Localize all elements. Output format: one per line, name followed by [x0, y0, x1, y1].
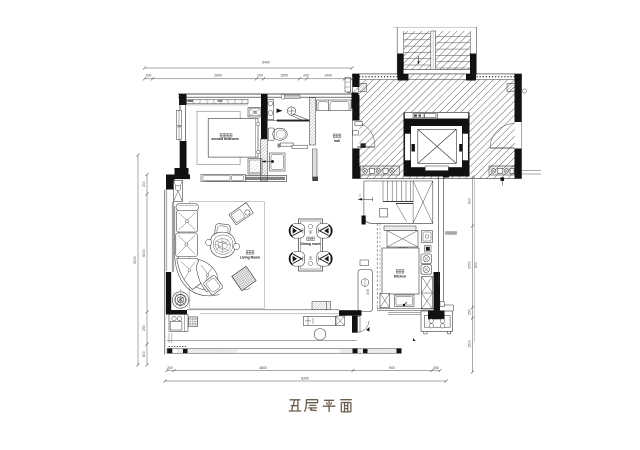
svg-text:1: 1 — [359, 194, 361, 198]
svg-text:Living Room: Living Room — [240, 256, 261, 260]
svg-text:250: 250 — [142, 325, 146, 331]
svg-text:600: 600 — [366, 289, 370, 295]
svg-text:2600: 2600 — [214, 74, 222, 78]
svg-text:8200: 8200 — [301, 377, 309, 381]
svg-text:900: 900 — [474, 262, 478, 268]
svg-text:250: 250 — [433, 366, 439, 370]
svg-text:9000: 9000 — [133, 256, 137, 264]
svg-text:Kitchen: Kitchen — [394, 275, 406, 279]
svg-text:6000: 6000 — [142, 249, 146, 257]
svg-text:1400: 1400 — [324, 74, 332, 78]
svg-text:200: 200 — [146, 74, 152, 78]
svg-text:800: 800 — [142, 351, 146, 357]
svg-text:4800: 4800 — [259, 366, 267, 370]
svg-text:900: 900 — [389, 366, 395, 370]
svg-text:200: 200 — [257, 74, 263, 78]
svg-text:hall: hall — [334, 139, 340, 143]
svg-text:600: 600 — [468, 198, 472, 204]
svg-text:1500: 1500 — [280, 74, 288, 78]
svg-text:5400: 5400 — [262, 61, 270, 65]
svg-text:200: 200 — [142, 181, 146, 187]
svg-text:200: 200 — [167, 366, 173, 370]
svg-text:250: 250 — [468, 309, 472, 315]
svg-text:1500: 1500 — [468, 340, 472, 348]
svg-text:2700: 2700 — [468, 261, 472, 269]
svg-text:second bedroom: second bedroom — [211, 137, 238, 141]
svg-text:200: 200 — [303, 74, 309, 78]
svg-text:Dining room: Dining room — [301, 242, 321, 246]
